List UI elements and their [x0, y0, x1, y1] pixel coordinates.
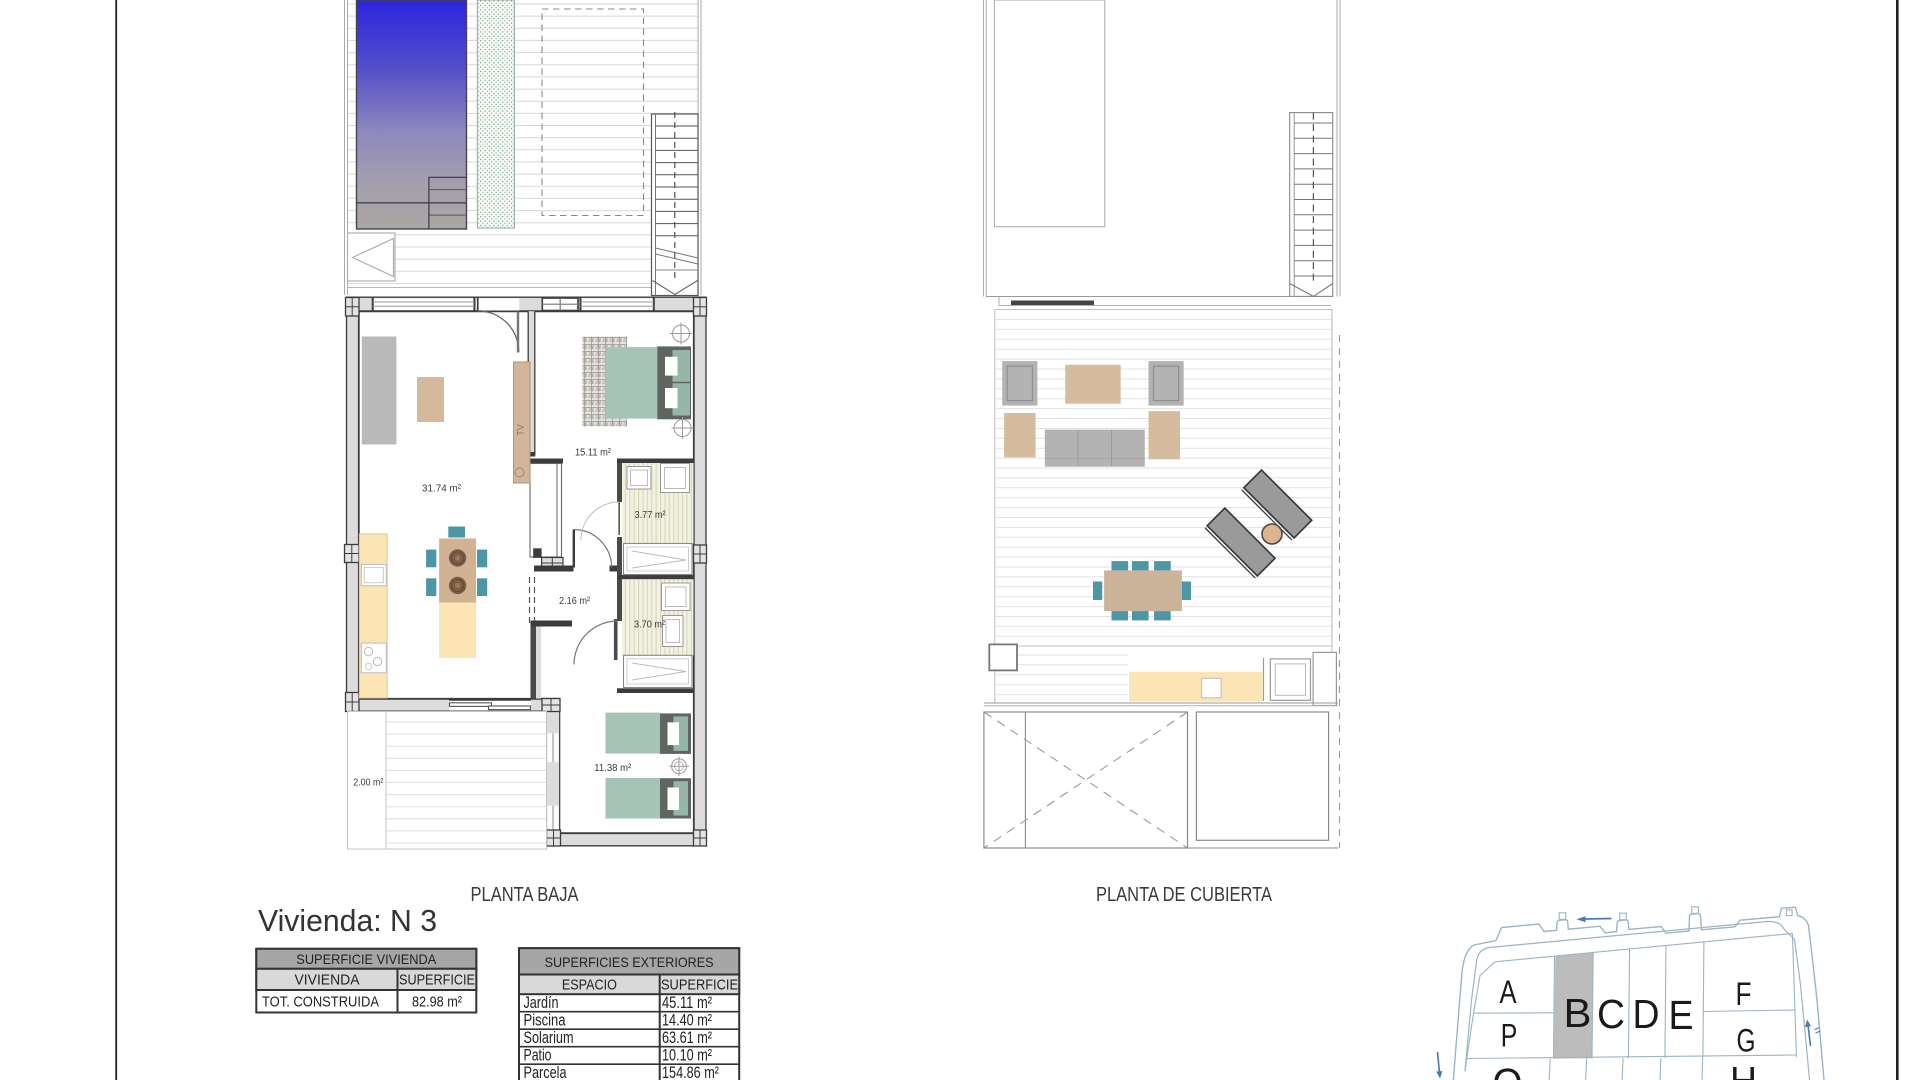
svg-text:SUPERFICIE VIVIENDA: SUPERFICIE VIVIENDA [296, 951, 437, 967]
svg-text:2.00 m²: 2.00 m² [353, 778, 384, 789]
svg-text:15.11 m²: 15.11 m² [575, 447, 612, 458]
svg-text:PLANTA DE CUBIERTA: PLANTA DE CUBIERTA [1096, 884, 1273, 906]
svg-text:11.38 m²: 11.38 m² [594, 763, 632, 774]
svg-text:Jardín: Jardín [524, 994, 559, 1012]
svg-text:31.74 m²: 31.74 m² [422, 483, 462, 494]
svg-text:G: G [1737, 1023, 1756, 1059]
svg-text:C: C [1597, 991, 1625, 1037]
svg-text:3.70 m²: 3.70 m² [634, 620, 666, 631]
svg-text:TOT. CONSTRUIDA: TOT. CONSTRUIDA [262, 994, 379, 1011]
svg-text:154.86 m²: 154.86 m² [662, 1064, 719, 1080]
svg-text:2.16 m²: 2.16 m² [559, 596, 591, 607]
svg-text:82.98 m²: 82.98 m² [412, 994, 462, 1011]
svg-text:E: E [1669, 992, 1694, 1038]
svg-text:Solarium: Solarium [524, 1029, 574, 1047]
svg-text:10.10 m²: 10.10 m² [662, 1047, 712, 1065]
svg-text:Piscina: Piscina [524, 1012, 567, 1030]
svg-text:P: P [1501, 1018, 1518, 1054]
svg-text:Patio: Patio [524, 1047, 552, 1065]
svg-text:D: D [1633, 991, 1660, 1037]
svg-text:SUPERFICIE: SUPERFICIE [399, 973, 475, 989]
svg-text:SUPERFICIE: SUPERFICIE [661, 977, 738, 994]
svg-text:VIVIENDA: VIVIENDA [295, 973, 360, 989]
svg-text:63.61 m²: 63.61 m² [662, 1029, 712, 1047]
svg-text:A: A [1500, 974, 1518, 1010]
svg-text:PLANTA BAJA: PLANTA BAJA [471, 884, 580, 906]
svg-text:ESPACIO: ESPACIO [562, 977, 617, 994]
svg-text:Parcela: Parcela [524, 1064, 568, 1080]
svg-text:Vivienda: N 3: Vivienda: N 3 [258, 903, 437, 938]
svg-text:14.40 m²: 14.40 m² [662, 1012, 712, 1030]
svg-text:3.77 m²: 3.77 m² [635, 510, 667, 521]
svg-text:TV: TV [516, 424, 526, 436]
svg-text:H: H [1730, 1058, 1757, 1080]
svg-text:B: B [1564, 990, 1592, 1036]
svg-text:Q: Q [1493, 1060, 1523, 1080]
svg-text:SUPERFICIES EXTERIORES: SUPERFICIES EXTERIORES [545, 954, 714, 970]
svg-text:F: F [1736, 976, 1752, 1012]
svg-text:45.11 m²: 45.11 m² [662, 994, 712, 1012]
